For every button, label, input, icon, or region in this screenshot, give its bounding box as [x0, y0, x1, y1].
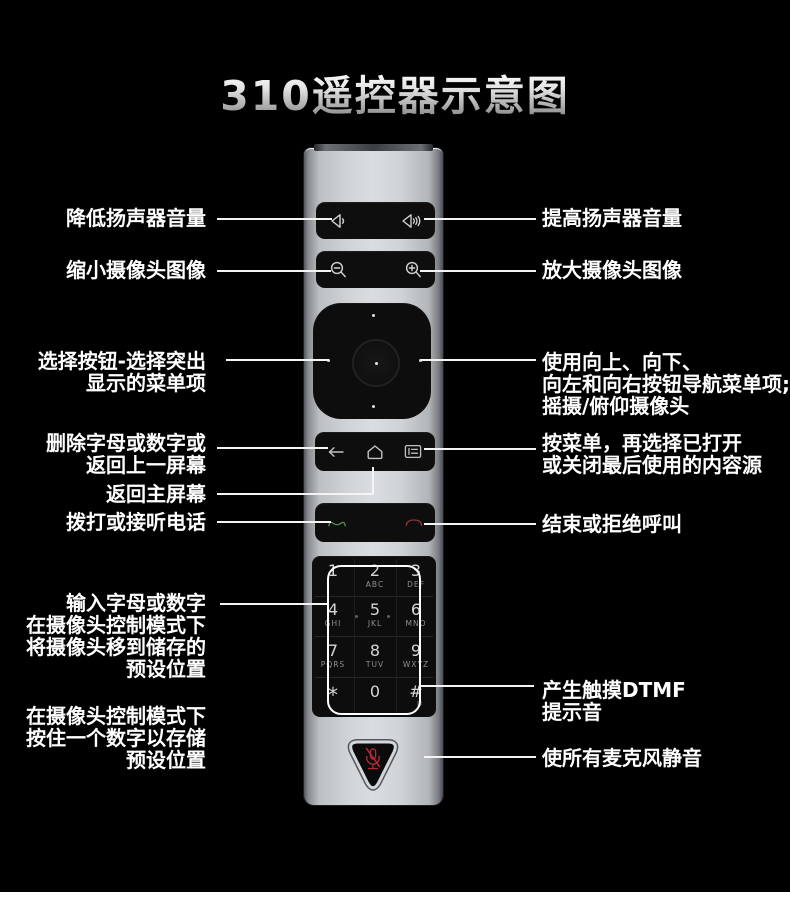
callout-line — [424, 523, 536, 525]
label-mute: 使所有麦克风静音 — [542, 747, 702, 769]
label-keypad-input: 输入字母或数字 在摄像头控制模式下 将摄像头移到储存的 预设位置 — [26, 592, 206, 680]
callout-line — [421, 685, 534, 687]
label-volume-down: 降低扬声器音量 — [66, 207, 206, 229]
mute-button[interactable] — [341, 735, 405, 795]
callout-line — [424, 756, 536, 758]
nav-pad-button[interactable] — [313, 303, 431, 419]
label-zoom-in: 放大摄像头图像 — [542, 259, 682, 281]
call-buttons-bar — [315, 503, 435, 542]
volume-rocker-button[interactable] — [316, 202, 435, 239]
bottom-white-strip — [0, 892, 790, 897]
callout-line — [372, 467, 374, 494]
label-store-preset: 在摄像头控制模式下 按住一个数字以存储 预设位置 — [26, 705, 206, 771]
label-menu: 按菜单，再选择已打开 或关闭最后使用的内容源 — [542, 432, 762, 476]
callout-line — [217, 218, 332, 220]
menu-button[interactable] — [404, 444, 422, 459]
label-home: 返回主屏幕 — [106, 483, 206, 505]
remote-top-cap — [314, 144, 433, 151]
label-select-button: 选择按钮-选择突出 显示的菜单项 — [38, 350, 206, 394]
callout-line — [424, 448, 536, 450]
callout-line — [424, 218, 536, 220]
label-end-call: 结束或拒绝呼叫 — [542, 513, 682, 535]
callout-line — [217, 493, 374, 495]
keypad-highlight-box — [327, 565, 421, 715]
label-delete-back: 删除字母或数字或 返回上一屏幕 — [46, 432, 206, 476]
callout-line — [220, 603, 329, 605]
label-dtmf: 产生触摸DTMF 提示音 — [542, 679, 686, 723]
label-navigate: 使用向上、向下、 向左和向右按钮导航菜单项; 摇摄/俯仰摄像头 — [542, 351, 790, 417]
back-button[interactable] — [326, 446, 346, 458]
label-volume-up: 提高扬声器音量 — [542, 207, 682, 229]
volume-up-icon — [401, 212, 424, 230]
home-button[interactable] — [365, 443, 385, 461]
callout-line — [217, 447, 328, 449]
nav-center-dot — [375, 362, 378, 365]
callout-line — [421, 359, 536, 361]
page-title: 310遥控器示意图 — [0, 62, 790, 122]
callout-line — [217, 521, 331, 523]
label-zoom-out: 缩小摄像头图像 — [66, 259, 206, 281]
callout-line — [217, 270, 331, 272]
zoom-out-icon — [329, 260, 349, 280]
end-call-icon[interactable] — [405, 518, 423, 527]
diagram-canvas: 310遥控器示意图 — [0, 0, 790, 897]
volume-down-icon — [329, 212, 351, 230]
nav-up-dot — [372, 314, 375, 317]
nav-select-ring[interactable] — [352, 339, 400, 387]
callout-line — [420, 270, 536, 272]
callout-line — [226, 359, 329, 361]
camera-zoom-rocker-button[interactable] — [316, 251, 435, 288]
label-call: 拨打或接听电话 — [66, 511, 206, 533]
nav-down-dot — [372, 405, 375, 408]
back-home-menu-bar — [315, 432, 435, 471]
